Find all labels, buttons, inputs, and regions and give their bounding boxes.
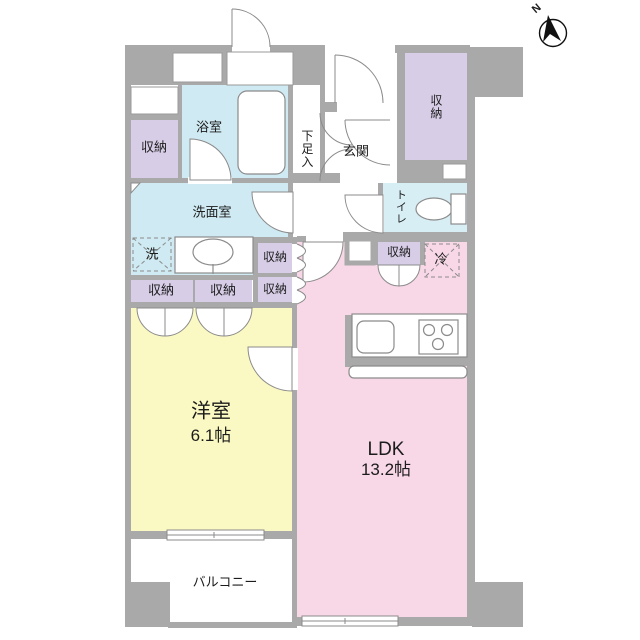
burner (433, 339, 444, 350)
floorplan: 浴室 洗面室 玄関 トイレ 下足入 収納 収納 収納 収納 収納 収納 収納 洗… (0, 0, 640, 640)
toilet-tank (451, 194, 466, 224)
washer-label: 洗 (145, 248, 158, 263)
storage-label: 収納 (428, 94, 442, 120)
meter-box (173, 53, 222, 82)
burner (442, 325, 453, 336)
genkan-label: 玄関 (343, 145, 369, 160)
shoe-cabinet-label: 下足入 (299, 130, 313, 169)
storage-label: 収納 (210, 284, 236, 299)
compass (540, 15, 567, 47)
bathroom-label: 浴室 (196, 121, 222, 136)
outer-door-arc (232, 9, 270, 47)
ldk-label: LDK (368, 439, 405, 461)
balcony-label: バルコニー (193, 576, 258, 591)
storage-label: 収納 (387, 246, 411, 260)
kitchen-sink (357, 321, 394, 353)
vanity-sink (193, 239, 233, 265)
western-room-size: 6.1帖 (191, 426, 232, 446)
storage-label: 収納 (263, 251, 287, 265)
ldk-area (297, 237, 467, 618)
pipe-space-right (443, 164, 466, 179)
ldk-size: 13.2帖 (361, 460, 411, 480)
entry-porch (227, 52, 293, 85)
toilet-bowl (416, 198, 452, 220)
western-room-label: 洋室 (191, 401, 231, 424)
bathtub (238, 91, 285, 174)
storage-label: 収納 (141, 141, 167, 156)
storage-label: 収納 (263, 283, 287, 297)
pipe-space-left (131, 87, 178, 114)
floorplan-drawing (0, 0, 640, 640)
fridge-label: 冷 (434, 253, 447, 268)
washroom-label: 洗面室 (192, 206, 231, 221)
toilet-label: トイレ (394, 189, 407, 225)
storage-label: 収納 (148, 284, 174, 299)
pipe-space-hall (347, 239, 373, 263)
counter-ledge (349, 366, 467, 378)
burner (424, 325, 435, 336)
